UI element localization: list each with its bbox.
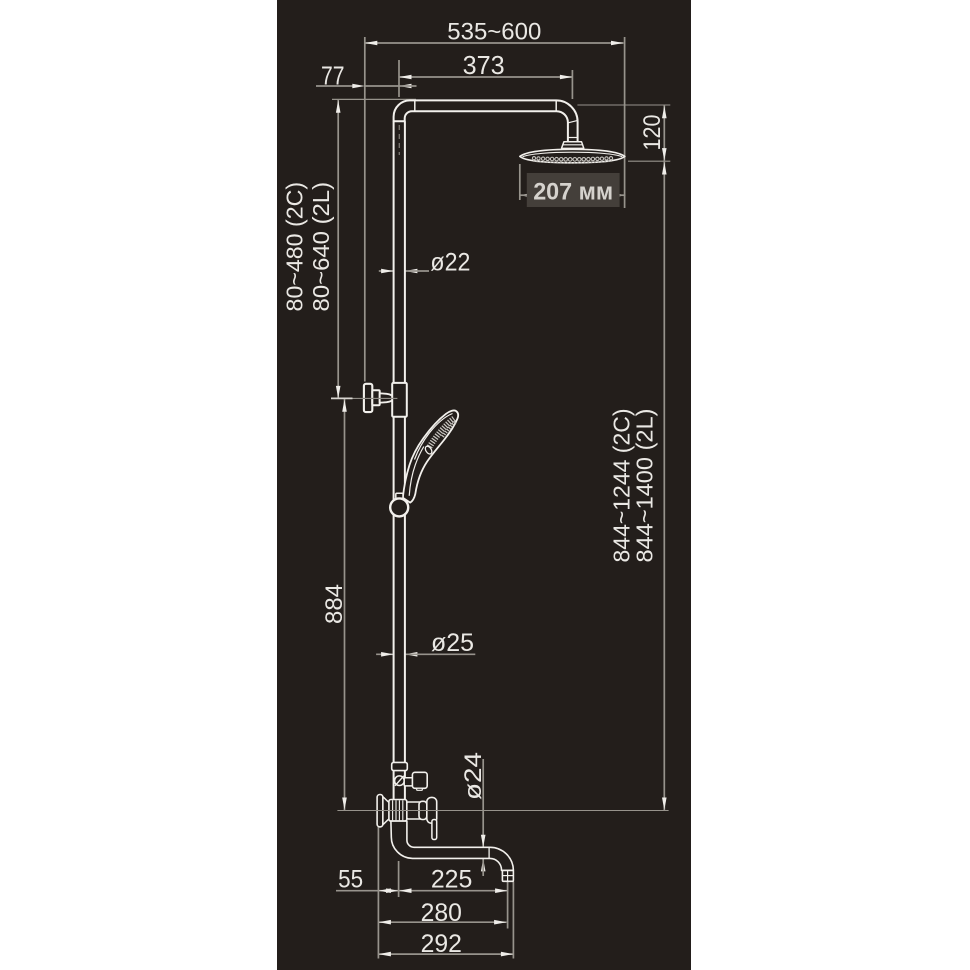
svg-text:ø25: ø25 <box>431 629 474 657</box>
svg-text:535~600: 535~600 <box>447 19 541 46</box>
svg-text:55: 55 <box>338 866 363 894</box>
svg-text:80~640 (2L): 80~640 (2L) <box>308 182 334 312</box>
svg-text:77: 77 <box>321 61 345 91</box>
svg-text:207 мм: 207 мм <box>533 178 613 205</box>
svg-text:280: 280 <box>421 899 462 927</box>
svg-text:80~480 (2C): 80~480 (2C) <box>282 182 308 312</box>
svg-text:ø22: ø22 <box>430 249 470 277</box>
svg-text:373: 373 <box>463 52 505 80</box>
svg-text:844~1400 (2L): 844~1400 (2L) <box>632 409 658 563</box>
svg-text:225: 225 <box>431 866 473 894</box>
svg-text:120: 120 <box>639 115 666 151</box>
svg-text:ø24: ø24 <box>460 752 487 800</box>
svg-text:884: 884 <box>321 584 348 624</box>
svg-text:292: 292 <box>421 930 462 958</box>
